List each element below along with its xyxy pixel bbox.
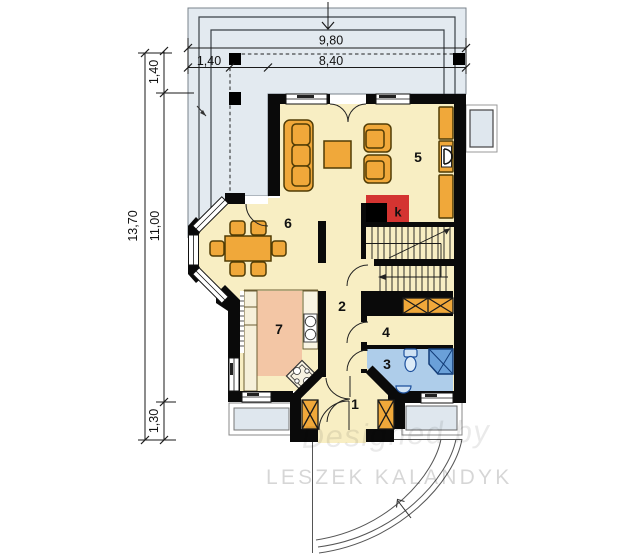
svg-text:1,30: 1,30 bbox=[147, 409, 161, 433]
svg-text:9,80: 9,80 bbox=[319, 34, 343, 48]
svg-text:13,70: 13,70 bbox=[126, 210, 140, 241]
svg-text:Designed by: Designed by bbox=[301, 413, 492, 455]
svg-text:1: 1 bbox=[351, 396, 359, 412]
svg-text:11,00: 11,00 bbox=[148, 211, 162, 241]
svg-text:k: k bbox=[394, 204, 402, 219]
svg-text:4: 4 bbox=[382, 324, 390, 340]
svg-text:LESZEK KALANDYK: LESZEK KALANDYK bbox=[266, 466, 512, 489]
svg-text:1,40: 1,40 bbox=[147, 60, 161, 84]
svg-text:2: 2 bbox=[338, 298, 346, 314]
svg-text:6: 6 bbox=[284, 215, 292, 231]
svg-text:3: 3 bbox=[383, 356, 391, 372]
svg-text:5: 5 bbox=[414, 149, 422, 165]
svg-text:7: 7 bbox=[275, 321, 283, 337]
svg-text:1,40: 1,40 bbox=[197, 54, 221, 68]
svg-text:8,40: 8,40 bbox=[319, 54, 343, 68]
